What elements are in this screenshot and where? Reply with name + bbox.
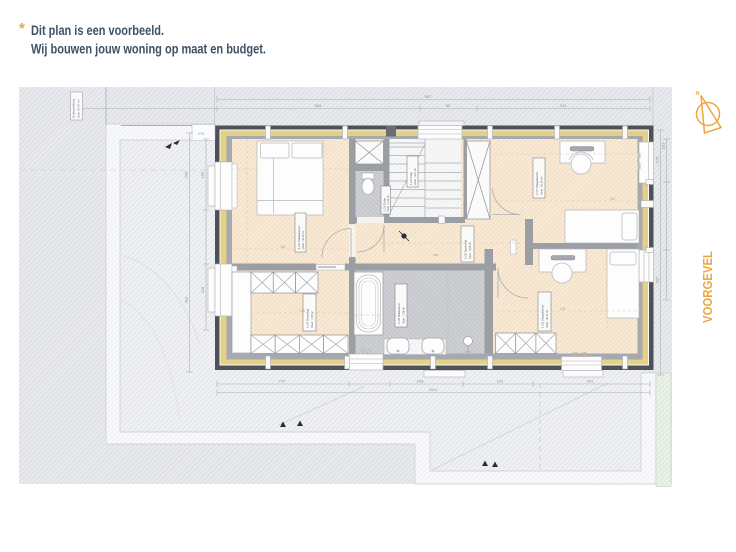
- svg-text:311: 311: [560, 103, 567, 108]
- svg-text:Vloer : 7,08 m²: Vloer : 7,08 m²: [310, 311, 314, 328]
- svg-text:Nokbedekking: Nokbedekking: [72, 99, 76, 118]
- svg-text:1.03 Toilet: 1.03 Toilet: [382, 198, 386, 212]
- svg-text:175: 175: [198, 132, 204, 136]
- svg-text:Dit plan is een voorbeeld.: Dit plan is een voorbeeld.: [31, 22, 164, 38]
- svg-text:907: 907: [425, 94, 432, 99]
- svg-text:VOORGEVEL: VOORGEVEL: [701, 251, 715, 323]
- svg-text:Vloer : 4,27 m²: Vloer : 4,27 m²: [413, 168, 417, 185]
- svg-text:118: 118: [300, 309, 305, 313]
- svg-text:1.01 Trap: 1.01 Trap: [409, 172, 413, 185]
- svg-text:747: 747: [279, 379, 286, 384]
- svg-text:243: 243: [184, 171, 189, 178]
- svg-text:243: 243: [417, 379, 424, 384]
- svg-text:Vloer : 1,14 m²: Vloer : 1,14 m²: [386, 195, 390, 212]
- svg-text:1.05 Badkamer: 1.05 Badkamer: [397, 303, 401, 324]
- svg-text:1.07 Slaapkamer: 1.07 Slaapkamer: [535, 172, 539, 195]
- svg-text:131: 131: [661, 142, 666, 149]
- svg-text:Vloer : 7,86 m²: Vloer : 7,86 m²: [402, 307, 406, 324]
- svg-text:Wij bouwen jouw woning op maat: Wij bouwen jouw woning op maat en budget…: [31, 41, 266, 57]
- svg-text:242: 242: [610, 197, 616, 201]
- svg-text:Vloer : 4,96 m²: Vloer : 4,96 m²: [468, 242, 472, 259]
- svg-text:218: 218: [560, 307, 566, 311]
- svg-text:455: 455: [280, 245, 286, 249]
- svg-text:*: *: [19, 20, 25, 37]
- svg-text:1.02 Slaapkamer: 1.02 Slaapkamer: [297, 226, 301, 249]
- svg-text:101: 101: [497, 379, 504, 384]
- svg-text:Vloer : 10,11 m²: Vloer : 10,11 m²: [545, 310, 549, 328]
- svg-text:155: 155: [200, 171, 205, 178]
- svg-text:92: 92: [446, 103, 451, 108]
- svg-text:175: 175: [655, 156, 660, 163]
- svg-text:N: N: [696, 91, 700, 97]
- svg-text:1.02 Nachthal: 1.02 Nachthal: [463, 240, 467, 259]
- svg-text:1.06 Slaapkamer: 1.06 Slaapkamer: [540, 305, 544, 328]
- svg-text:344: 344: [315, 103, 322, 108]
- svg-text:118: 118: [200, 286, 205, 293]
- svg-text:Vloer : 10,01 m²: Vloer : 10,01 m²: [540, 176, 544, 195]
- svg-text:Vloer : 16,10 m²: Vloer : 16,10 m²: [301, 230, 305, 249]
- svg-text:287: 287: [655, 276, 660, 283]
- svg-text:1.04 Dressing: 1.04 Dressing: [305, 309, 309, 328]
- svg-text:2411: 2411: [429, 387, 438, 392]
- svg-text:720: 720: [433, 253, 438, 257]
- svg-text:291: 291: [587, 379, 594, 384]
- svg-text:413: 413: [184, 296, 189, 303]
- svg-text:Dak: 97,97 m²: Dak: 97,97 m²: [77, 99, 81, 118]
